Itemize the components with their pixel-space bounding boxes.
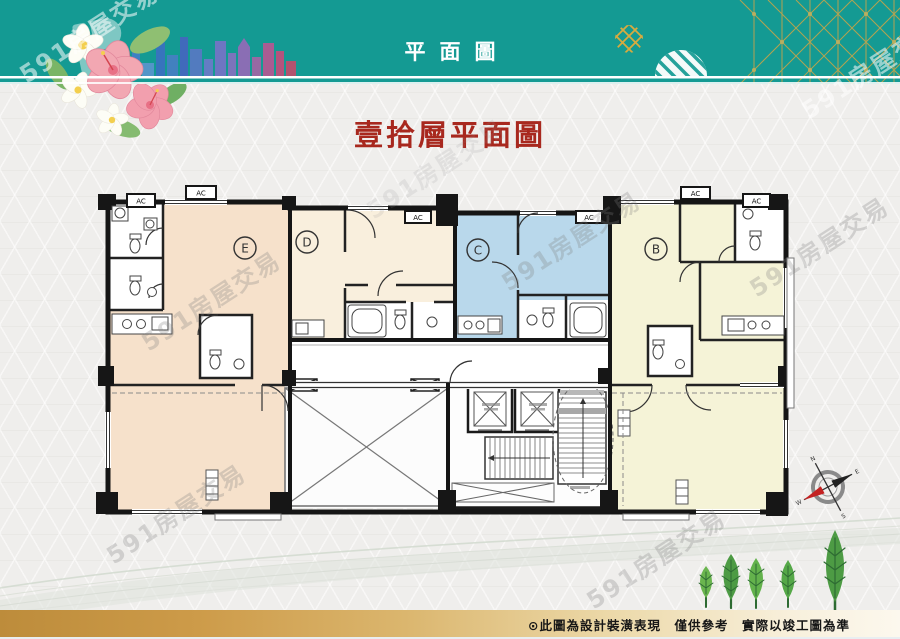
- compass-w: W: [795, 498, 804, 507]
- tree: [780, 560, 796, 607]
- stair-a: [485, 437, 553, 479]
- page-header-title: 平面圖: [0, 36, 900, 66]
- compass-n: N: [810, 455, 817, 463]
- unit-label-c: C: [474, 244, 482, 258]
- poster: AC AC AC AC AC AC E D C B: [0, 0, 900, 639]
- swoosh-lines: [0, 518, 900, 622]
- tree: [748, 558, 764, 608]
- disclaimer-text: ⊙此圖為設計裝潢表現 僅供參考 實際以竣工圖為準: [528, 615, 850, 634]
- ac-label: AC: [691, 190, 701, 198]
- unit-label-b: B: [652, 243, 660, 257]
- ac-label: AC: [752, 198, 762, 206]
- page-title: 壹拾層平面圖: [0, 112, 900, 154]
- floor-plan: AC AC AC AC AC AC E D C B: [0, 0, 900, 639]
- tree: [722, 554, 740, 608]
- ac-label: AC: [584, 214, 594, 222]
- tree: [699, 566, 713, 607]
- unit-label-d: D: [302, 236, 311, 250]
- ac-label: AC: [136, 198, 146, 206]
- ac-label: AC: [413, 214, 423, 222]
- unit-label-e: E: [241, 242, 249, 256]
- ac-label: AC: [196, 190, 206, 198]
- stair-b: [553, 383, 613, 493]
- compass-e: E: [854, 468, 861, 476]
- footer-gold-bar: ⊙此圖為設計裝潢表現 僅供參考 實際以竣工圖為準: [0, 610, 900, 637]
- compass-s: S: [840, 513, 847, 521]
